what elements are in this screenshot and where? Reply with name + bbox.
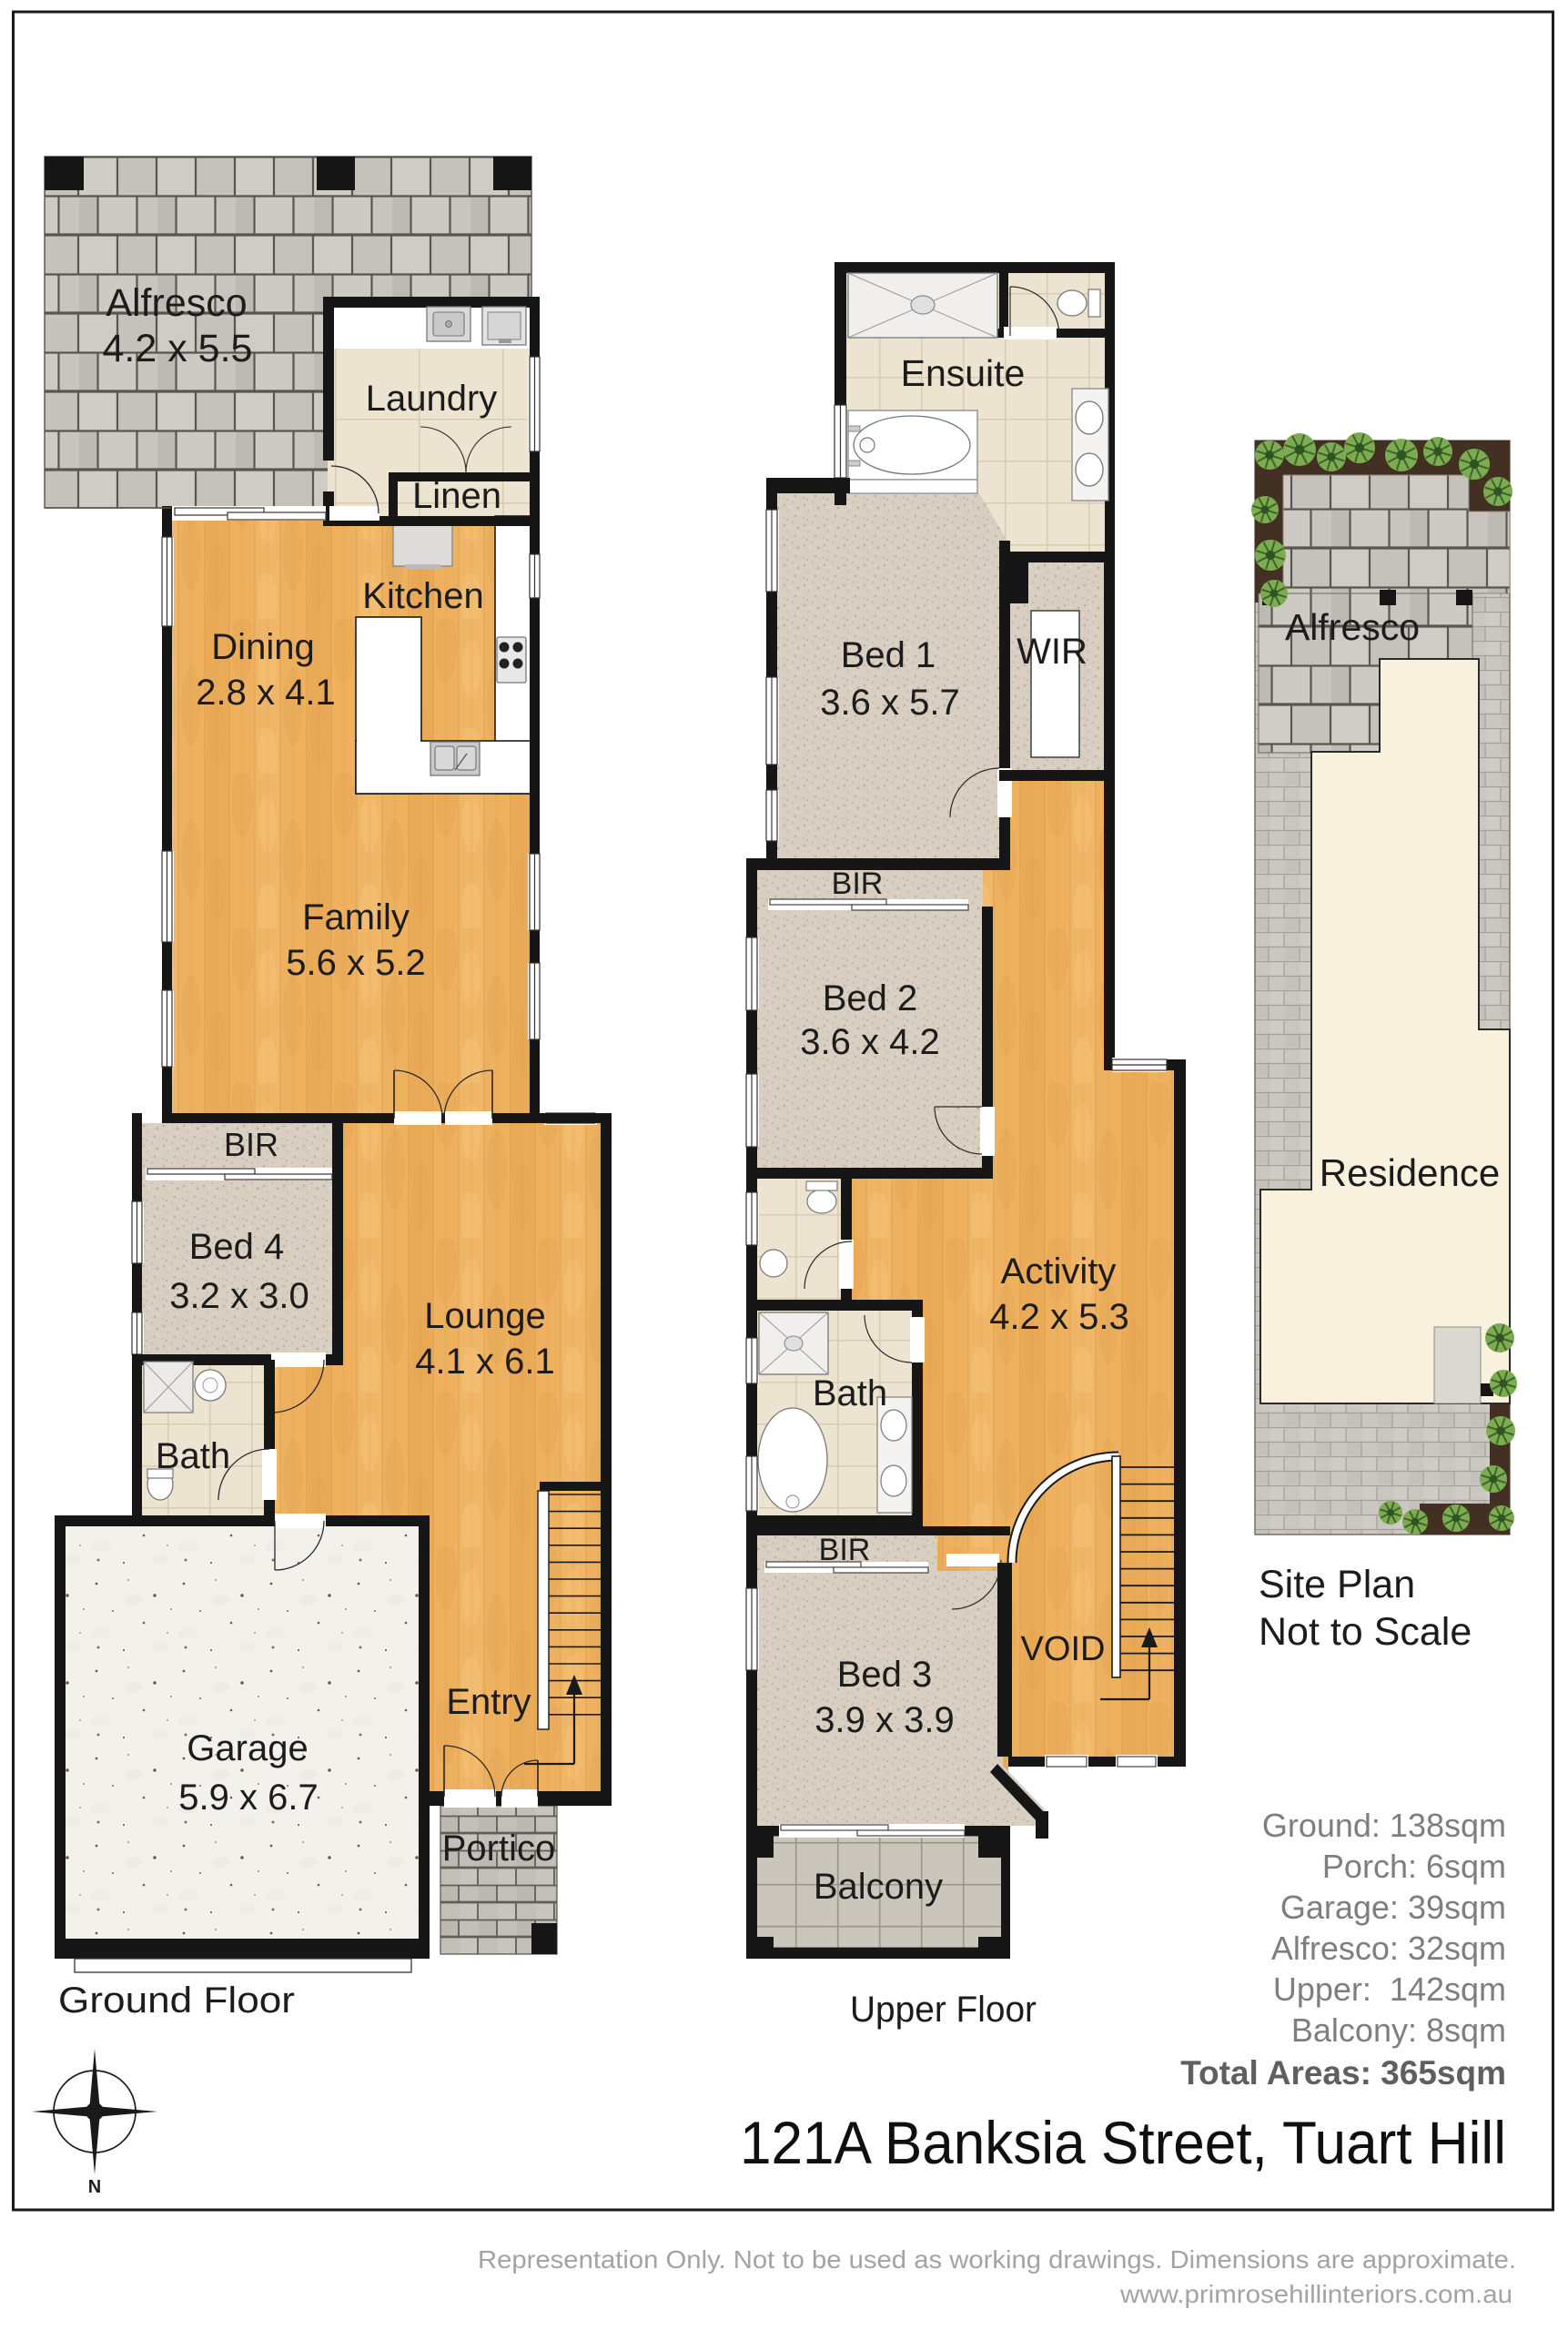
svg-text:N: N: [88, 2177, 101, 2197]
svg-text:Ensuite: Ensuite: [901, 352, 1026, 394]
svg-text:Laundry: Laundry: [366, 379, 498, 419]
svg-text:3.2 x 3.0: 3.2 x 3.0: [169, 1276, 309, 1316]
svg-text:BIR: BIR: [819, 1533, 871, 1567]
svg-text:Lounge: Lounge: [424, 1296, 545, 1336]
svg-text:4.2 x 5.3: 4.2 x 5.3: [989, 1297, 1128, 1337]
svg-text:121A Banksia Street, Tuart Hil: 121A Banksia Street, Tuart Hill: [740, 2109, 1506, 2176]
svg-text:WIR: WIR: [1017, 632, 1087, 672]
svg-text:Bath: Bath: [156, 1436, 230, 1476]
svg-text:Ground Floor: Ground Floor: [58, 1980, 295, 2021]
svg-text:Entry: Entry: [446, 1682, 531, 1722]
svg-text:3.9 x 3.9: 3.9 x 3.9: [814, 1700, 954, 1740]
svg-text:Residence: Residence: [1320, 1151, 1500, 1194]
svg-text:3.6 x 5.7: 3.6 x 5.7: [820, 683, 959, 723]
svg-text:Alfresco: 32sqm: Alfresco: 32sqm: [1271, 1930, 1506, 1967]
svg-text:Dining: Dining: [211, 627, 314, 667]
svg-text:Linen: Linen: [412, 476, 501, 516]
svg-text:BIR: BIR: [832, 866, 884, 901]
svg-text:Activity: Activity: [1001, 1251, 1117, 1292]
svg-text:Alfresco: Alfresco: [1285, 606, 1420, 648]
svg-text:Bed 3: Bed 3: [837, 1655, 933, 1695]
svg-text:Balcony: Balcony: [814, 1867, 943, 1907]
svg-text:Balcony: 8sqm: Balcony: 8sqm: [1291, 2011, 1506, 2049]
svg-text:www.primrosehillinteriors.com.: www.primrosehillinteriors.com.au: [1119, 2280, 1512, 2308]
svg-text:Site Plan: Site Plan: [1259, 1563, 1415, 1606]
svg-text:5.9 x 6.7: 5.9 x 6.7: [178, 1778, 318, 1818]
svg-text:Kitchen: Kitchen: [362, 576, 483, 616]
svg-text:Bed 1: Bed 1: [841, 635, 936, 675]
svg-text:VOID: VOID: [1021, 1630, 1106, 1668]
svg-text:4.1 x 6.1: 4.1 x 6.1: [415, 1342, 554, 1382]
svg-text:Upper: 142sqm: Upper: 142sqm: [1273, 1970, 1506, 2008]
svg-text:Garage: Garage: [187, 1728, 308, 1768]
svg-text:5.6 x 5.2: 5.6 x 5.2: [286, 943, 425, 983]
svg-text:Portico: Portico: [442, 1829, 556, 1869]
svg-text:BIR: BIR: [224, 1126, 278, 1163]
svg-text:Upper Floor: Upper Floor: [850, 1990, 1037, 2030]
svg-text:Family: Family: [302, 897, 410, 937]
svg-text:Not to Scale: Not to Scale: [1259, 1610, 1472, 1654]
svg-text:4.2 x 5.5: 4.2 x 5.5: [103, 327, 253, 370]
svg-text:Ground: 138sqm: Ground: 138sqm: [1262, 1807, 1506, 1844]
svg-text:Alfresco: Alfresco: [106, 281, 247, 325]
svg-text:2.8 x 4.1: 2.8 x 4.1: [196, 673, 335, 713]
svg-text:Bed 4: Bed 4: [189, 1227, 285, 1267]
svg-text:3.6 x 4.2: 3.6 x 4.2: [800, 1022, 939, 1062]
svg-text:Representation Only. Not to be: Representation Only. Not to be used as w…: [478, 2245, 1516, 2274]
svg-text:Total Areas: 365sqm: Total Areas: 365sqm: [1180, 2054, 1506, 2092]
svg-text:Bath: Bath: [813, 1373, 887, 1413]
svg-text:Garage: 39sqm: Garage: 39sqm: [1280, 1889, 1506, 1926]
svg-text:Bed 2: Bed 2: [823, 978, 918, 1018]
svg-text:Porch: 6sqm: Porch: 6sqm: [1322, 1848, 1506, 1885]
